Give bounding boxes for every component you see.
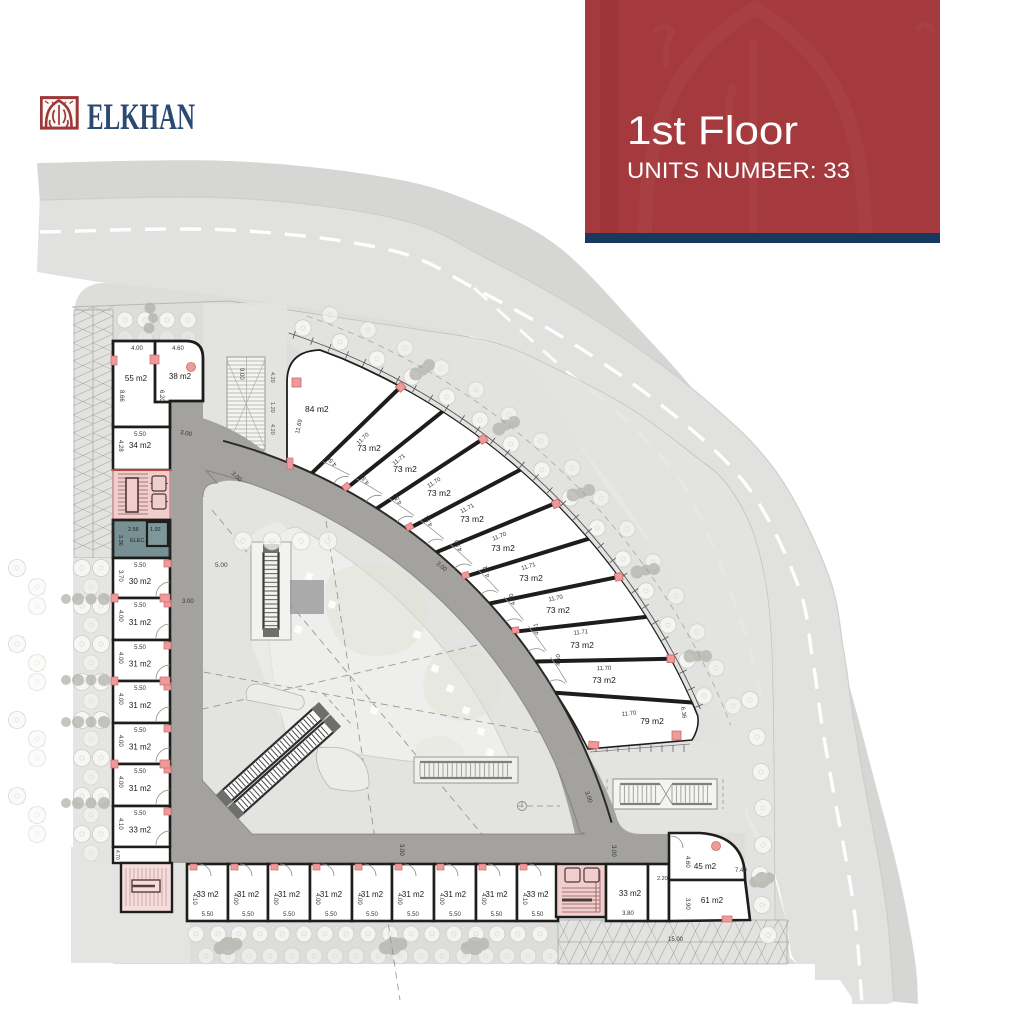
svg-text:79 m2: 79 m2	[640, 716, 664, 726]
svg-text:5.50: 5.50	[366, 912, 378, 918]
svg-text:5.50: 5.50	[134, 645, 146, 651]
svg-text:31 m2: 31 m2	[129, 784, 152, 793]
svg-text:5.50: 5.50	[407, 912, 419, 918]
svg-text:4.00: 4.00	[232, 893, 238, 905]
svg-text:31 m2: 31 m2	[129, 618, 152, 627]
svg-text:73 m2: 73 m2	[427, 488, 451, 498]
svg-text:4.60: 4.60	[684, 856, 690, 868]
svg-text:4.00: 4.00	[396, 893, 402, 905]
svg-text:4.50: 4.50	[556, 653, 562, 665]
svg-text:31 m2: 31 m2	[402, 890, 425, 899]
svg-text:4.20: 4.20	[269, 372, 275, 383]
svg-text:33 m2: 33 m2	[619, 889, 642, 898]
svg-text:31 m2: 31 m2	[361, 890, 384, 899]
svg-text:31 m2: 31 m2	[129, 701, 152, 710]
svg-text:5.50: 5.50	[134, 811, 146, 817]
svg-text:ELEC.: ELEC.	[130, 538, 146, 544]
svg-text:73 m2: 73 m2	[519, 573, 543, 583]
svg-text:34 m2: 34 m2	[129, 441, 152, 450]
svg-text:5.50: 5.50	[134, 603, 146, 609]
svg-text:3.00: 3.00	[182, 599, 194, 605]
svg-text:9.00: 9.00	[238, 368, 244, 380]
svg-text:11.70: 11.70	[597, 666, 612, 672]
svg-text:2.20: 2.20	[657, 876, 668, 882]
svg-text:45 m2: 45 m2	[694, 862, 717, 871]
svg-text:3.36: 3.36	[117, 535, 123, 546]
svg-text:5.50: 5.50	[491, 912, 503, 918]
svg-text:5.50: 5.50	[532, 912, 544, 918]
svg-text:4.51: 4.51	[533, 622, 540, 635]
svg-text:31 m2: 31 m2	[129, 660, 152, 669]
svg-text:4.00: 4.00	[117, 735, 123, 747]
svg-text:84 m2: 84 m2	[305, 404, 329, 414]
svg-text:ELKHAN: ELKHAN	[87, 97, 195, 138]
svg-text:6.20: 6.20	[158, 390, 164, 402]
svg-text:3.70: 3.70	[117, 570, 123, 582]
svg-text:33 m2: 33 m2	[129, 826, 152, 835]
svg-text:4.28: 4.28	[117, 440, 123, 452]
svg-text:4.00: 4.00	[272, 893, 278, 905]
svg-text:3.90: 3.90	[684, 898, 690, 910]
svg-text:5.50: 5.50	[242, 912, 254, 918]
svg-text:1.20: 1.20	[269, 402, 275, 413]
svg-text:73 m2: 73 m2	[570, 640, 594, 650]
svg-text:5.00: 5.00	[215, 562, 228, 569]
svg-text:3.80: 3.80	[622, 911, 634, 917]
svg-text:4.70: 4.70	[114, 850, 120, 860]
svg-text:1st Floor: 1st Floor	[627, 109, 798, 153]
svg-text:5.50: 5.50	[134, 769, 146, 775]
svg-text:31 m2: 31 m2	[485, 890, 508, 899]
svg-text:61 m2: 61 m2	[701, 896, 724, 905]
svg-text:30 m2: 30 m2	[129, 577, 152, 586]
svg-text:7.40: 7.40	[735, 868, 747, 874]
svg-text:5.50: 5.50	[134, 728, 146, 734]
svg-text:4.00: 4.00	[131, 346, 143, 352]
svg-text:3.00: 3.00	[398, 844, 404, 856]
svg-text:5.50: 5.50	[134, 432, 146, 438]
svg-text:33 m2: 33 m2	[196, 890, 219, 899]
svg-text:4.00: 4.00	[480, 893, 486, 905]
svg-text:55 m2: 55 m2	[125, 374, 148, 383]
svg-text:3.00: 3.00	[610, 845, 616, 857]
svg-text:4.00: 4.00	[117, 652, 123, 664]
svg-text:33 m2: 33 m2	[526, 890, 549, 899]
svg-text:5.50: 5.50	[325, 912, 337, 918]
svg-text:4.00: 4.00	[117, 610, 123, 622]
svg-text:5.50: 5.50	[283, 912, 295, 918]
svg-text:2.56: 2.56	[128, 527, 139, 533]
svg-text:5.50: 5.50	[449, 912, 461, 918]
svg-text:31 m2: 31 m2	[320, 890, 343, 899]
svg-text:31 m2: 31 m2	[444, 890, 467, 899]
svg-text:31 m2: 31 m2	[278, 890, 301, 899]
svg-text:4.00: 4.00	[356, 893, 362, 905]
svg-text:73 m2: 73 m2	[491, 543, 515, 553]
svg-text:5.50: 5.50	[134, 563, 146, 569]
svg-text:UNITS NUMBER: 33: UNITS NUMBER: 33	[627, 158, 850, 183]
svg-text:73 m2: 73 m2	[460, 514, 484, 524]
svg-text:1.92: 1.92	[150, 527, 161, 533]
svg-text:4.10: 4.10	[191, 893, 197, 905]
svg-text:4.00: 4.00	[438, 893, 444, 905]
svg-text:4.10: 4.10	[521, 893, 527, 905]
svg-text:73 m2: 73 m2	[546, 605, 570, 615]
svg-text:4.10: 4.10	[117, 818, 123, 830]
svg-text:5.50: 5.50	[134, 686, 146, 692]
svg-text:38 m2: 38 m2	[169, 372, 192, 381]
svg-text:4.20: 4.20	[269, 424, 275, 435]
svg-text:5.50: 5.50	[202, 912, 214, 918]
svg-text:31 m2: 31 m2	[129, 743, 152, 752]
svg-text:15.00: 15.00	[668, 937, 684, 943]
svg-text:8.66: 8.66	[118, 390, 124, 402]
svg-text:4.00: 4.00	[117, 776, 123, 788]
svg-text:4.00: 4.00	[314, 893, 320, 905]
svg-text:4.00: 4.00	[117, 693, 123, 705]
svg-text:73 m2: 73 m2	[592, 675, 616, 685]
svg-text:4.60: 4.60	[172, 346, 184, 352]
svg-text:31 m2: 31 m2	[237, 890, 260, 899]
